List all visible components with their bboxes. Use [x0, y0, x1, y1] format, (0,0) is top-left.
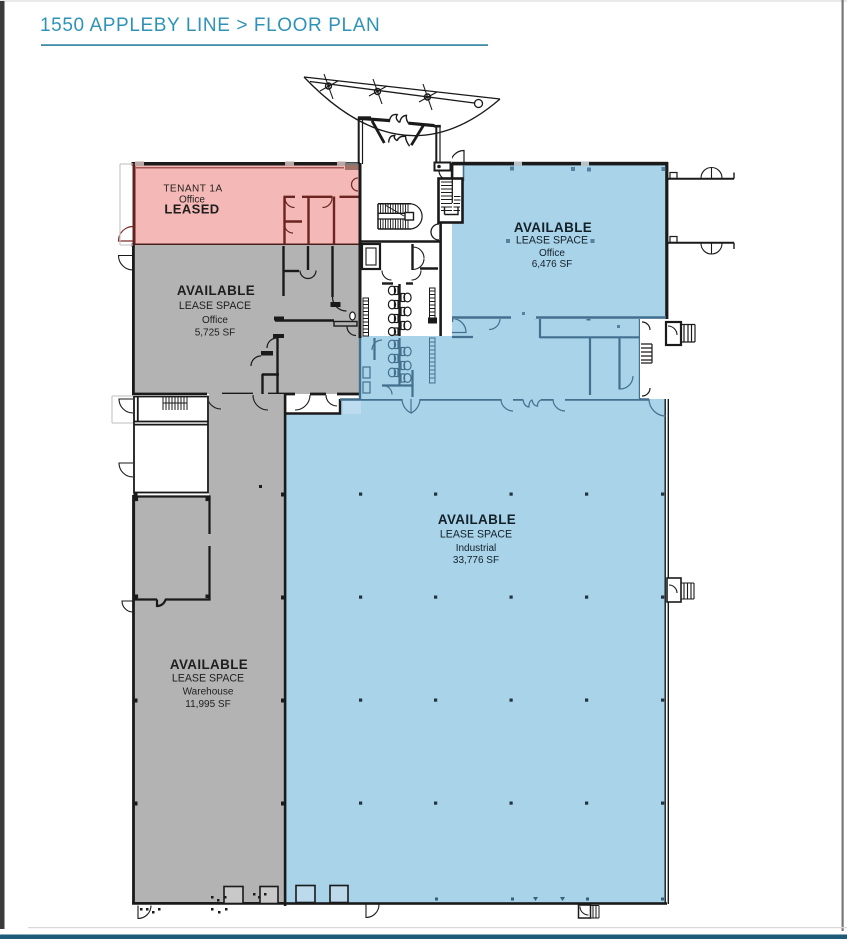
svg-text:1550 APPLEBY LINE > FLOOR PLAN: 1550 APPLEBY LINE > FLOOR PLAN [40, 15, 380, 36]
svg-text:AVAILABLE: AVAILABLE [177, 283, 255, 298]
svg-text:Office: Office [539, 248, 565, 259]
svg-text:Office: Office [202, 315, 228, 326]
svg-text:Warehouse: Warehouse [183, 687, 234, 698]
svg-text:AVAILABLE: AVAILABLE [514, 220, 592, 235]
svg-text:LEASE SPACE: LEASE SPACE [172, 673, 244, 685]
svg-text:5,725 SF: 5,725 SF [195, 328, 236, 339]
svg-text:LEASE SPACE: LEASE SPACE [516, 235, 588, 247]
svg-text:6,476 SF: 6,476 SF [532, 259, 573, 270]
svg-text:33,776 SF: 33,776 SF [453, 555, 499, 566]
svg-text:LEASED: LEASED [164, 202, 219, 217]
svg-text:LEASE SPACE: LEASE SPACE [179, 300, 251, 312]
svg-text:Industrial: Industrial [456, 543, 497, 554]
svg-text:LEASE SPACE: LEASE SPACE [440, 529, 512, 541]
svg-text:AVAILABLE: AVAILABLE [170, 657, 248, 672]
svg-text:AVAILABLE: AVAILABLE [438, 512, 516, 527]
svg-text:11,995 SF: 11,995 SF [185, 699, 230, 710]
svg-text:TENANT 1A: TENANT 1A [163, 184, 222, 195]
